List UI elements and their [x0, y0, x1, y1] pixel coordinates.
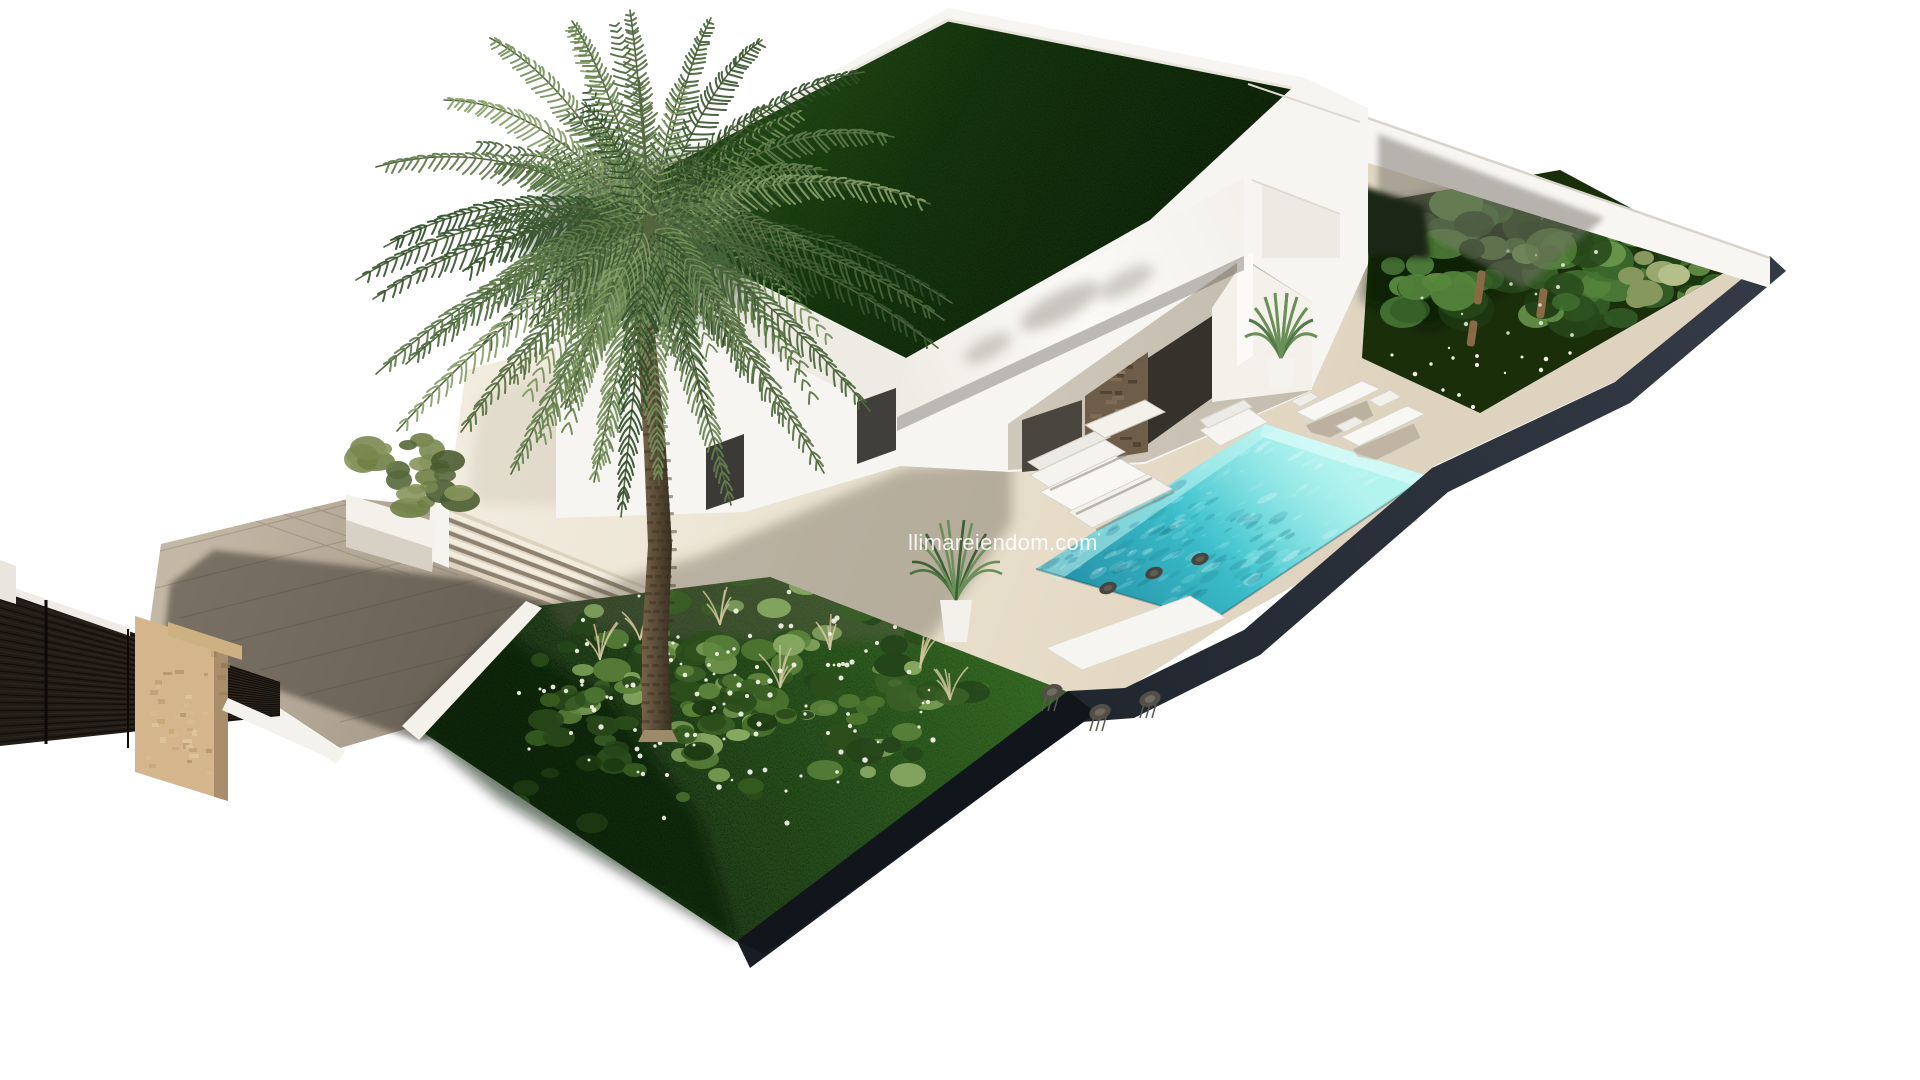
svg-text:llimareiendom.com': llimareiendom.com' [908, 530, 1101, 555]
